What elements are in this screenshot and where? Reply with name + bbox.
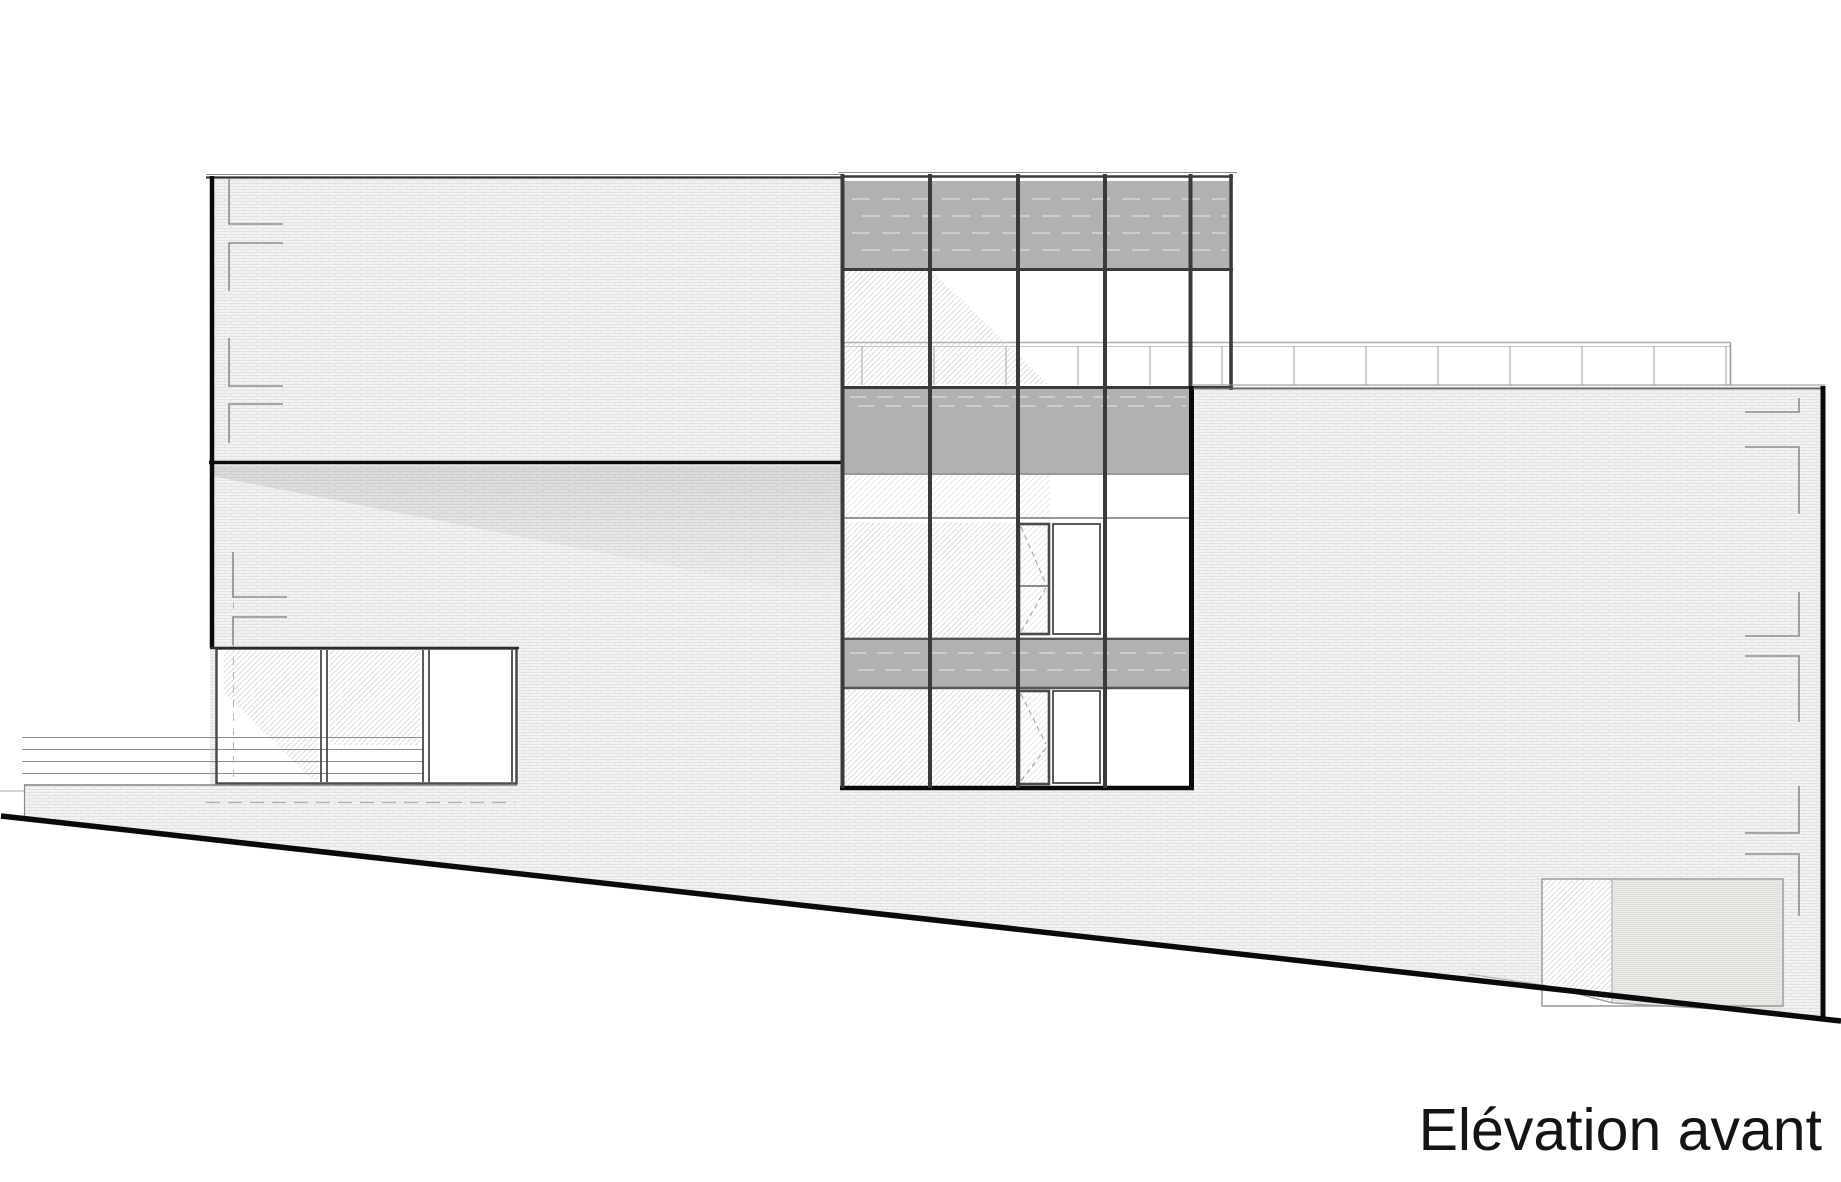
elevation-sheet: Elévation avant <box>0 0 1841 1182</box>
garage-door <box>1613 880 1782 1013</box>
left-block-wall <box>210 177 842 463</box>
low-glass-bay1 <box>844 690 928 786</box>
spandrel-band-1 <box>844 181 1229 268</box>
drawing-title: Elévation avant <box>1419 1097 1822 1163</box>
elevation-drawing: Elévation avant <box>0 0 1841 1182</box>
window-pane-2 <box>329 651 420 745</box>
mid-glass-bay1 <box>844 522 928 638</box>
casement-window-upper <box>1019 524 1100 634</box>
fixed-pane-upper <box>1053 524 1100 634</box>
fixed-pane-lower <box>1053 691 1100 783</box>
casement-window-lower <box>1019 691 1100 784</box>
plinth-wall <box>24 786 210 840</box>
glass-hatch-bay1 <box>844 271 928 385</box>
mid-glass-bay2 <box>932 522 1016 638</box>
low-glass-bay2 <box>932 690 1016 786</box>
recess-reveal <box>1543 880 1612 1002</box>
